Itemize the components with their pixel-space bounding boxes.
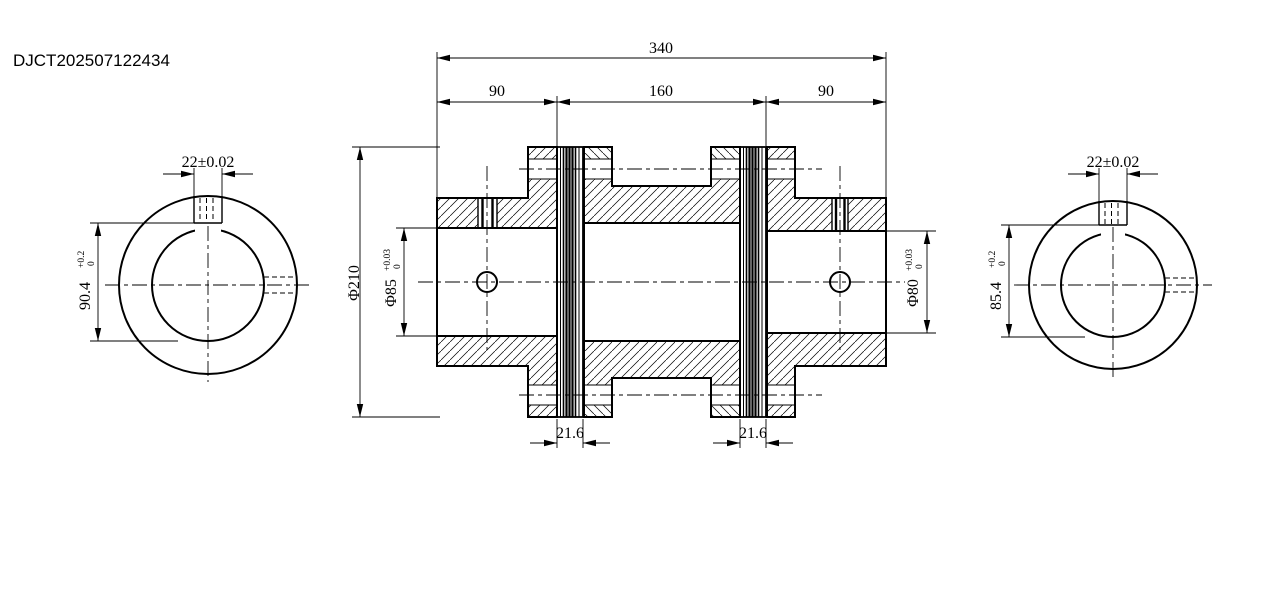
svg-text:Φ85: Φ85	[383, 279, 400, 307]
dim-right-bore: Φ80 +0.03 0	[905, 231, 930, 333]
dim-left-hub-length: 90	[489, 83, 505, 100]
svg-text:85.4: 85.4	[988, 282, 1005, 310]
left-end-view: 22±0.02 90.4 +0.2 0	[77, 154, 312, 382]
svg-text:+0.03: +0.03	[905, 249, 915, 271]
dim-middle-length: 160	[649, 83, 673, 100]
svg-text:+0.2: +0.2	[988, 251, 998, 268]
svg-text:0: 0	[393, 264, 403, 269]
dimensions-section: 340 90 160 90 Φ210	[346, 40, 936, 448]
section-view	[418, 147, 905, 417]
dim-overall-length: 340	[437, 40, 886, 61]
svg-text:+0.2: +0.2	[77, 251, 87, 268]
right-end-view: 22±0.02 85.4 +0.2 0	[988, 154, 1212, 380]
left-hub-keyway-section	[478, 198, 497, 228]
svg-text:90.4: 90.4	[77, 282, 94, 310]
svg-text:21.6: 21.6	[556, 425, 584, 442]
dim-left-keyway-width: 22±0.02	[163, 154, 253, 196]
svg-text:0: 0	[87, 261, 97, 266]
svg-text:340: 340	[649, 40, 673, 57]
dim-left-bore: Φ85 +0.03 0	[383, 228, 407, 336]
dim-flange-diameter: Φ210	[346, 147, 363, 417]
svg-text:22±0.02: 22±0.02	[182, 154, 235, 171]
svg-text:22±0.02: 22±0.02	[1087, 154, 1140, 171]
drawing-sheet: DJCT202507122434	[0, 0, 1261, 606]
svg-text:Φ210: Φ210	[346, 265, 363, 301]
dim-right-keyway-width: 22±0.02	[1068, 154, 1158, 201]
dim-right-hub-length: 90	[818, 83, 834, 100]
right-view-keyway	[1099, 201, 1127, 225]
dim-left-bore-keyway: 90.4 +0.2 0	[77, 223, 194, 341]
svg-text:0: 0	[998, 261, 1008, 266]
dim-right-disc-pack: 21.6	[713, 425, 793, 446]
svg-text:21.6: 21.6	[739, 425, 767, 442]
dim-segment-lengths: 90 160 90	[437, 83, 886, 105]
left-view-keyway	[194, 196, 222, 223]
dim-left-disc-pack: 21.6	[530, 425, 610, 446]
svg-text:0: 0	[915, 264, 925, 269]
svg-text:Φ80: Φ80	[905, 279, 922, 307]
svg-text:+0.03: +0.03	[383, 249, 393, 271]
drawing-number: DJCT202507122434	[13, 51, 170, 70]
coupling-drawing: DJCT202507122434	[0, 0, 1261, 606]
